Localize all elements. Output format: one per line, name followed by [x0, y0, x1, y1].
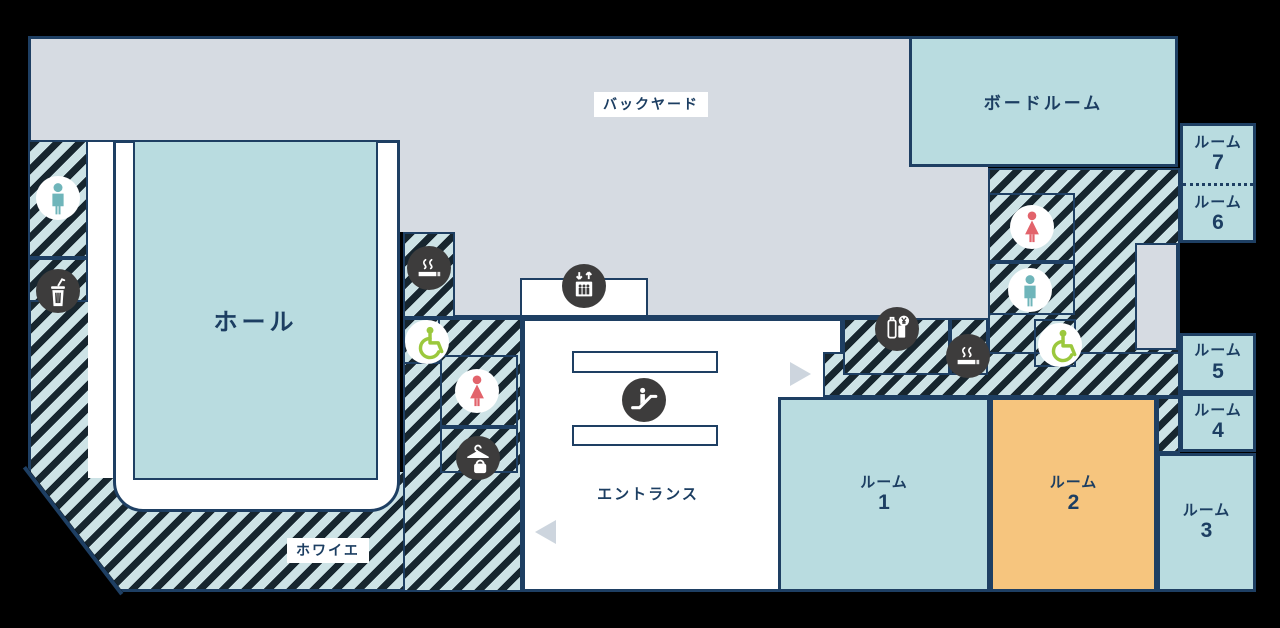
side-hatch-strip — [1157, 397, 1180, 453]
arrow-right-icon[interactable] — [790, 362, 811, 386]
room-5[interactable]: ルーム 5 — [1180, 333, 1256, 393]
room-3-label: ルーム — [1183, 502, 1231, 519]
room-7-6-block: ルーム 7 ルーム 6 — [1180, 123, 1256, 243]
trash-icon[interactable] — [36, 269, 80, 313]
elevator-glyph — [565, 267, 603, 305]
smoking-glyph — [949, 337, 987, 375]
room-4[interactable]: ルーム 4 — [1180, 393, 1256, 452]
womens-toilet-icon-right[interactable] — [1010, 205, 1054, 249]
room-4-number: 4 — [1212, 419, 1224, 443]
hall-corridor — [88, 140, 113, 478]
wheelchair-glyph — [408, 323, 446, 361]
woman-glyph — [458, 372, 496, 410]
room-1-label: ルーム — [860, 474, 908, 491]
room-4-label: ルーム — [1194, 402, 1242, 419]
escalator-glyph — [624, 380, 664, 420]
vending-machine-icon[interactable] — [875, 307, 919, 351]
room-5-number: 5 — [1212, 360, 1224, 384]
room-3-number: 3 — [1201, 519, 1213, 543]
room-2[interactable]: ルーム 2 — [990, 397, 1157, 592]
floor-map: ホール ボードルーム ルーム 7 ルーム 6 — [0, 0, 1280, 628]
boardroom-label: ボードルーム — [984, 89, 1104, 114]
room-7-number: 7 — [1212, 151, 1224, 175]
man-glyph — [1011, 271, 1049, 309]
hall-label: ホール — [135, 302, 376, 337]
room-2-number: 2 — [1068, 491, 1080, 515]
backyard-area-right — [909, 167, 988, 318]
backyard-label: バックヤード — [594, 92, 708, 117]
room-2-label: ルーム — [1050, 474, 1098, 491]
man-glyph — [39, 179, 77, 217]
room-1-number: 1 — [878, 491, 890, 515]
wheelchair-glyph — [1041, 326, 1079, 364]
entrance-label: エントランス — [558, 483, 738, 504]
room-6-number: 6 — [1212, 211, 1224, 235]
cloakroom-icon[interactable] — [456, 436, 500, 480]
mens-toilet-icon[interactable] — [36, 176, 80, 220]
accessible-icon-left[interactable] — [405, 320, 449, 364]
arrow-left-icon[interactable] — [535, 520, 556, 544]
smoking-glyph — [410, 249, 448, 287]
escalator-rail-top — [572, 351, 718, 373]
trash-glyph — [39, 272, 77, 310]
accessible-icon-right[interactable] — [1038, 323, 1082, 367]
mens-toilet-icon-right[interactable] — [1008, 268, 1052, 312]
room-5-label: ルーム — [1194, 342, 1242, 359]
foyer-label: ホワイエ — [287, 538, 369, 563]
hall-room[interactable]: ホール — [133, 140, 378, 480]
room-7[interactable]: ルーム 7 — [1183, 126, 1253, 186]
room-3[interactable]: ルーム 3 — [1157, 453, 1256, 592]
smoking-icon-left[interactable] — [407, 246, 451, 290]
room-1[interactable]: ルーム 1 — [778, 397, 990, 592]
cloak-glyph — [459, 439, 497, 477]
escalator-icon[interactable] — [622, 378, 666, 422]
woman-glyph — [1013, 208, 1051, 246]
vending-glyph — [878, 310, 916, 348]
room-6-label: ルーム — [1194, 194, 1242, 211]
elevator-icon[interactable] — [562, 264, 606, 308]
escalator-rail-bottom — [572, 425, 718, 446]
smoking-icon-right[interactable] — [946, 334, 990, 378]
womens-toilet-icon-left[interactable] — [455, 369, 499, 413]
boardroom[interactable]: ボードルーム — [909, 36, 1178, 167]
room-6[interactable]: ルーム 6 — [1183, 186, 1253, 243]
service-gray-room — [1135, 243, 1178, 350]
room-7-label: ルーム — [1194, 134, 1242, 151]
